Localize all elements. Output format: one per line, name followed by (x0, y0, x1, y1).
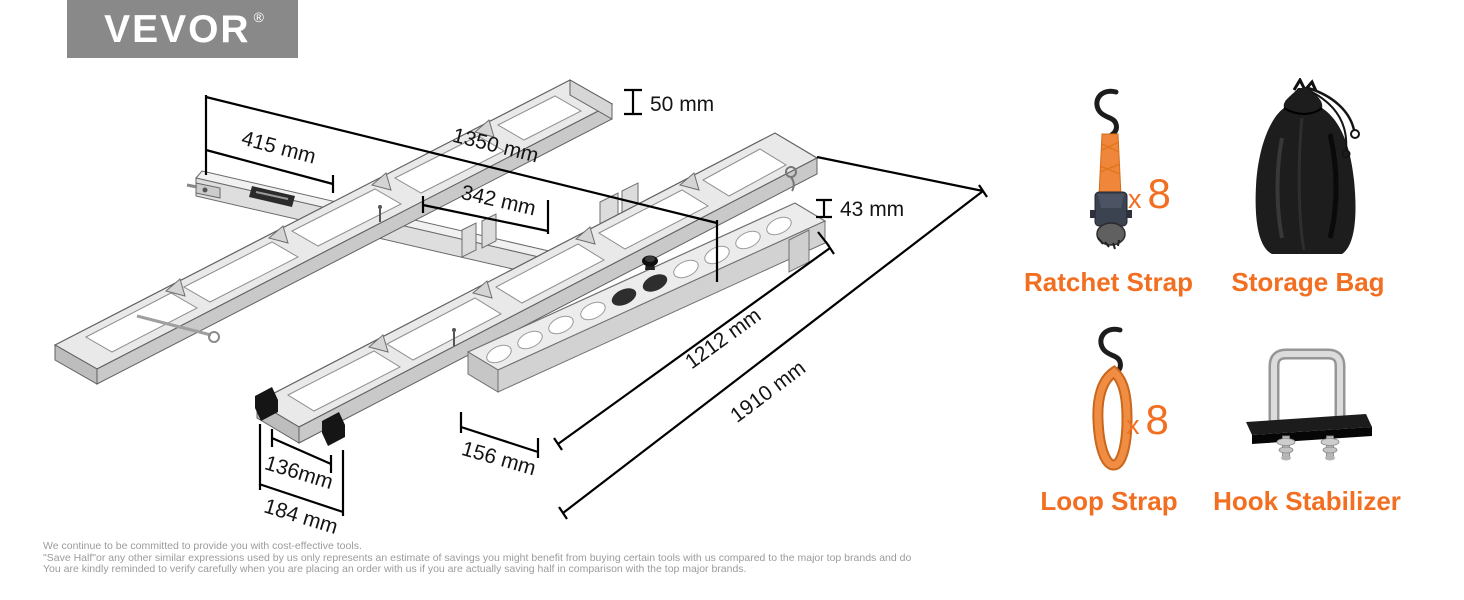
disclaimer-line-3: You are kindly reminded to verify carefu… (43, 564, 911, 576)
hook-stabilizer-label: Hook Stabilizer (1207, 486, 1407, 517)
dimension-label-50: 50 mm (650, 93, 714, 116)
s-hook-icon (1097, 91, 1117, 136)
loop-strap-label: Loop Strap (1024, 486, 1194, 517)
dimension-label-1910: 1910 mm (726, 356, 810, 427)
qty-x: x (1128, 184, 1142, 215)
disclaimer-line-1: We continue to be committed to provide y… (43, 541, 911, 553)
dimension-label-1212: 1212 mm (681, 304, 765, 374)
carrier-dimension-diagram: 415 mm 1350 mm 50 mm 342 mm 43 mm 1212 m… (0, 0, 1010, 560)
storage-bag-icon (1242, 78, 1368, 262)
carrier-rail-near (255, 133, 817, 446)
qty-x: x (1126, 410, 1140, 441)
ratchet-qty: x8 (1128, 170, 1171, 218)
dimension-label-156: 156 mm (459, 437, 538, 480)
disclaimer: We continue to be committed to provide y… (43, 541, 911, 576)
qty-number: 8 (1148, 170, 1171, 218)
safety-pin-ring (209, 332, 219, 342)
dimension-label-184: 184 mm (261, 495, 340, 539)
storage-bag-label: Storage Bag (1218, 267, 1398, 298)
hook-stabilizer-icon (1238, 342, 1374, 470)
u-bolt-icon (1274, 354, 1340, 426)
s-hook-icon (1101, 329, 1121, 374)
loop-qty: x8 (1126, 396, 1169, 444)
product-infographic: VEVOR® (0, 0, 1464, 600)
dimension-label-43: 43 mm (840, 198, 904, 221)
qty-number: 8 (1146, 396, 1169, 444)
ratchet-strap-label: Ratchet Strap (1020, 267, 1197, 298)
